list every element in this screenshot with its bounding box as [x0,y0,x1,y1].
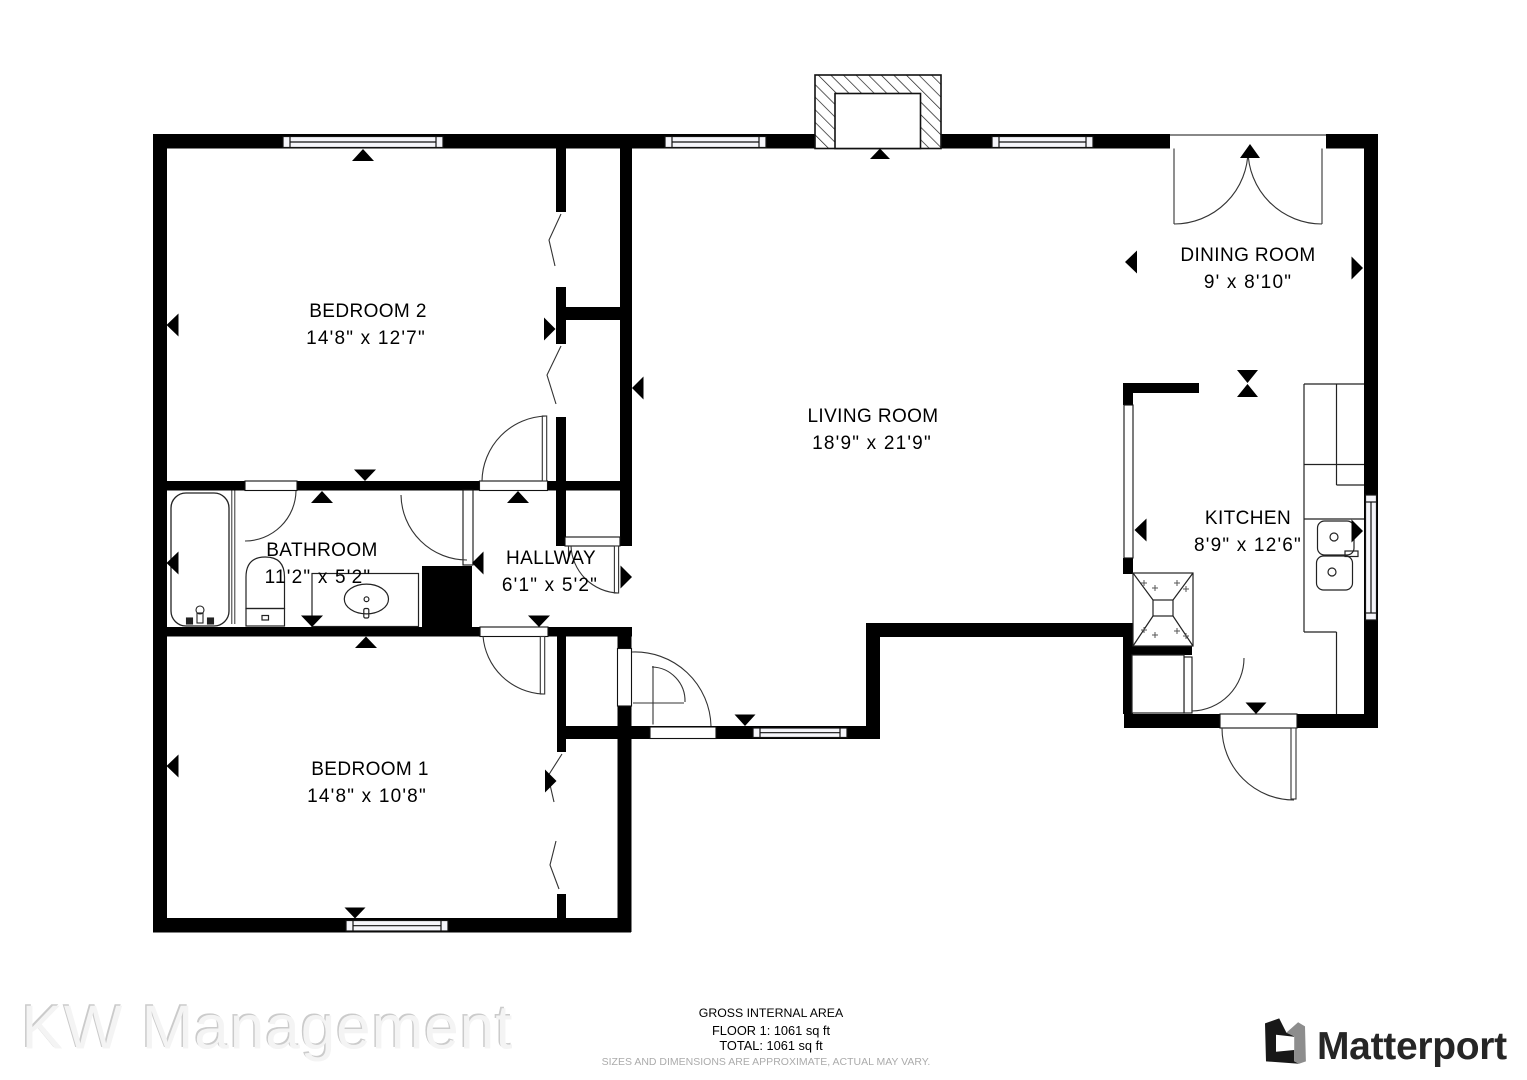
svg-text:HALLWAY: HALLWAY [506,548,596,569]
svg-text:LIVING ROOM: LIVING ROOM [807,406,938,427]
svg-text:TOTAL: 1061 sq ft: TOTAL: 1061 sq ft [719,1038,823,1053]
svg-text:6'1" x 5'2": 6'1" x 5'2" [502,575,598,596]
svg-text:18'9" x 21'9": 18'9" x 21'9" [812,433,932,454]
svg-text:BEDROOM 1: BEDROOM 1 [311,759,429,780]
svg-text:GROSS INTERNAL AREA: GROSS INTERNAL AREA [699,1006,844,1020]
svg-text:14'8" x 12'7": 14'8" x 12'7" [306,328,426,349]
svg-text:Matterport: Matterport [1317,1025,1507,1068]
svg-text:KITCHEN: KITCHEN [1205,508,1291,529]
svg-text:9' x 8'10": 9' x 8'10" [1204,272,1292,293]
svg-text:8'9" x 12'6": 8'9" x 12'6" [1194,535,1302,556]
svg-text:BATHROOM: BATHROOM [266,540,378,561]
svg-text:KW Management: KW Management [22,994,514,1063]
svg-text:DINING ROOM: DINING ROOM [1180,245,1315,266]
svg-text:FLOOR 1: 1061 sq ft: FLOOR 1: 1061 sq ft [712,1023,831,1038]
svg-text:BEDROOM 2: BEDROOM 2 [309,301,427,322]
svg-text:11'2" x 5'2": 11'2" x 5'2" [265,567,372,588]
svg-text:14'8" x 10'8": 14'8" x 10'8" [307,786,427,807]
svg-text:SIZES AND DIMENSIONS ARE APPRO: SIZES AND DIMENSIONS ARE APPROXIMATE, AC… [602,1056,931,1068]
